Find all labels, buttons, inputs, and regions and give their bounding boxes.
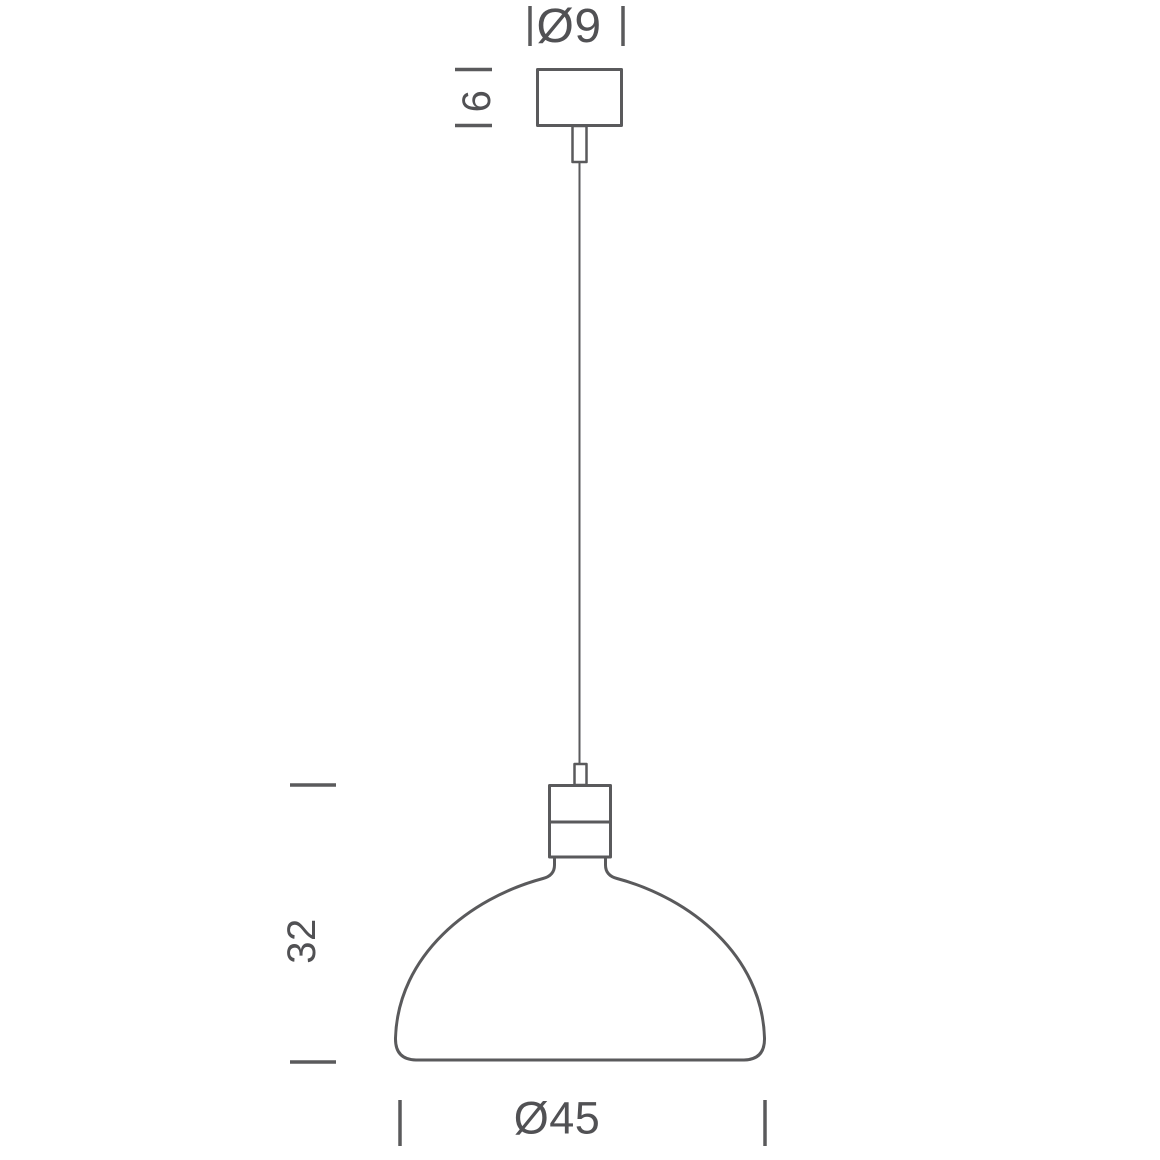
dimension-ticks [290, 6, 765, 1146]
ceiling-canopy-outline [538, 70, 622, 126]
lamp-line-drawing [0, 0, 1160, 1160]
canopy-diameter-label: Ø9 [536, 3, 601, 51]
shade-diameter-label: Ø45 [514, 1096, 601, 1141]
diagram-canvas: Ø9 6 32 Ø45 [0, 0, 1160, 1160]
strain-relief-outline [573, 126, 587, 162]
shade-outline [395, 857, 764, 1060]
cord-grip-outline [575, 764, 587, 785]
shade-height-label: 32 [282, 918, 322, 964]
canopy-height-label: 6 [457, 90, 497, 113]
